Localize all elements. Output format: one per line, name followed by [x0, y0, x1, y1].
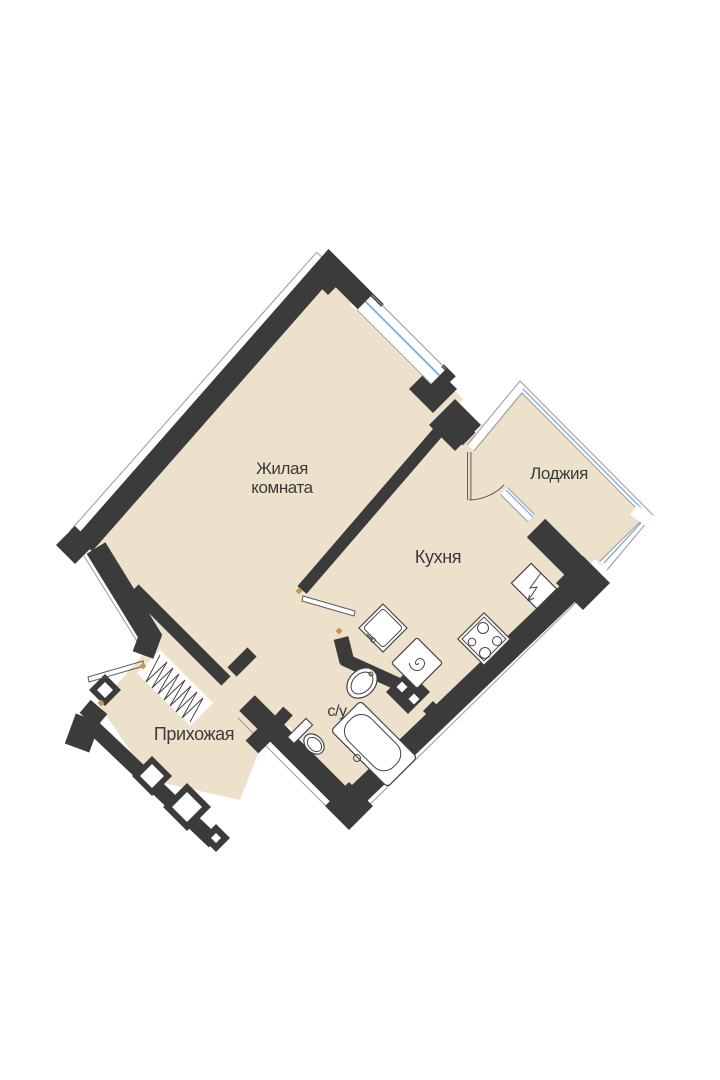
floor-plan-drawing: Жилая комната Кухня Лоджия Прихожая с/у: [0, 0, 720, 1080]
loggia-label: Лоджия: [530, 464, 588, 483]
kitchen-label: Кухня: [415, 547, 461, 567]
living-room-label-line1: Жилая: [256, 459, 308, 478]
living-room-label-line2: комната: [251, 478, 313, 497]
bathroom-label: с/у: [327, 703, 347, 720]
hallway-label: Прихожая: [154, 724, 234, 744]
floor-plan-page: Жилая комната Кухня Лоджия Прихожая с/у: [0, 0, 720, 1080]
